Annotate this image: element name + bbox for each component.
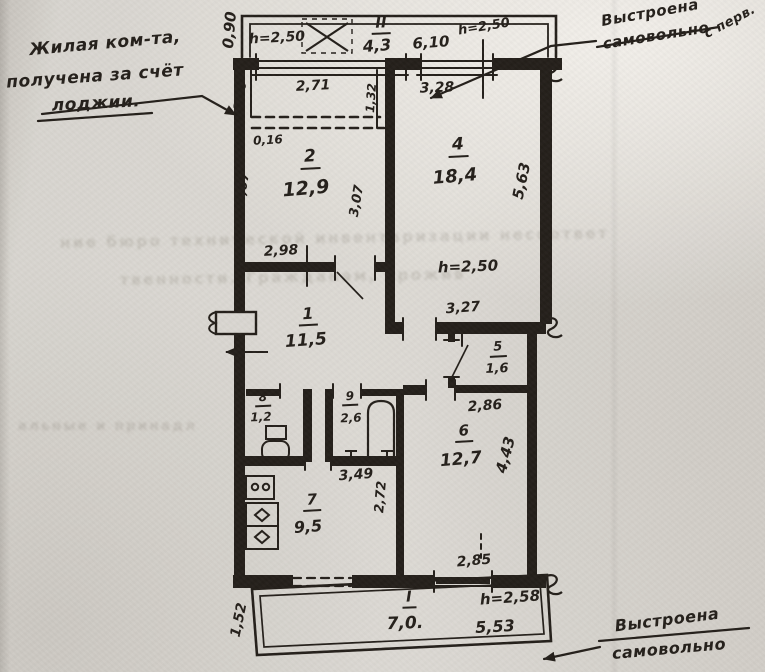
dim-3-07-left: 3,07: [234, 171, 252, 205]
room-1-number: 1: [298, 306, 318, 327]
dim-5-63: 5,63: [511, 161, 533, 200]
scanned-floor-plan-photo: ние бюро технической инвентаризации несо…: [0, 0, 765, 672]
height-balcony: h=2,58: [479, 588, 540, 607]
room-7-number: 7: [302, 492, 321, 512]
dim-2-86: 2,86: [467, 398, 502, 414]
room-7-area: 9,5: [293, 518, 322, 536]
room-4-number: 4: [448, 136, 469, 158]
dim-1-52: 1,52: [229, 602, 250, 639]
dim-0-90: 0,90: [221, 11, 239, 49]
dim-3-07-right: 3,07: [348, 184, 366, 218]
dim-6-10: 6,10: [412, 34, 450, 52]
note-corner-fragment-line-1: с перв.: [702, 3, 758, 41]
room-I-number: I: [402, 589, 416, 608]
room-2-area: 12,9: [282, 177, 330, 200]
dim-3-49: 3,49: [338, 467, 373, 483]
room-8-area: 1,2: [250, 411, 272, 424]
room-2-number: 2: [300, 148, 321, 170]
dim-4-43: 4,43: [494, 435, 518, 475]
dim-0-16: 0,16: [253, 133, 283, 147]
room-4-area: 18,4: [432, 166, 478, 188]
note-room-from-loggia-line-1: Жилая ком-та,: [29, 29, 182, 59]
dim-2-71: 2,71: [295, 78, 330, 94]
note-unauthorized-bottom-line-1: Выстроена: [614, 606, 720, 635]
dim-5-53: 5,53: [475, 618, 515, 636]
dim-1-32: 1,32: [364, 83, 378, 113]
dim-2-98: 2,98: [263, 243, 298, 259]
room-1-area: 11,5: [284, 331, 327, 351]
height-loggia-right: h=2,50: [457, 16, 511, 37]
room-5-number: 5: [489, 340, 507, 358]
height-room-4: h=2,50: [438, 258, 499, 275]
room-9-number: 9: [341, 390, 358, 407]
room-I-area: 7,0.: [386, 615, 423, 633]
dim-3-27: 3,27: [445, 300, 480, 316]
note-unauthorized-bottom-line-2: самовольно: [611, 636, 726, 662]
room-9-area: 2,6: [340, 412, 362, 425]
dim-3-28: 3,28: [419, 80, 454, 95]
room-6-area: 12,7: [439, 450, 482, 471]
height-loggia: h=2,50: [249, 30, 306, 47]
room-6-number: 6: [454, 423, 473, 443]
dim-2-85: 2,85: [456, 553, 492, 570]
room-II-area: 4,3: [362, 37, 391, 55]
plan-text-layer: h=2,50II4,36,10h=2,500,902,711,801,320,1…: [0, 0, 765, 672]
room-5-area: 1,6: [485, 362, 508, 376]
note-room-from-loggia-line-2: получена за счёт: [6, 62, 184, 91]
note-room-from-loggia-line-3: лоджии.: [51, 93, 140, 115]
dim-2-72: 2,72: [373, 480, 389, 513]
room-8-number: 8: [254, 391, 271, 408]
dim-1-80: 1,80: [232, 80, 249, 111]
room-II-number: II: [371, 15, 391, 35]
